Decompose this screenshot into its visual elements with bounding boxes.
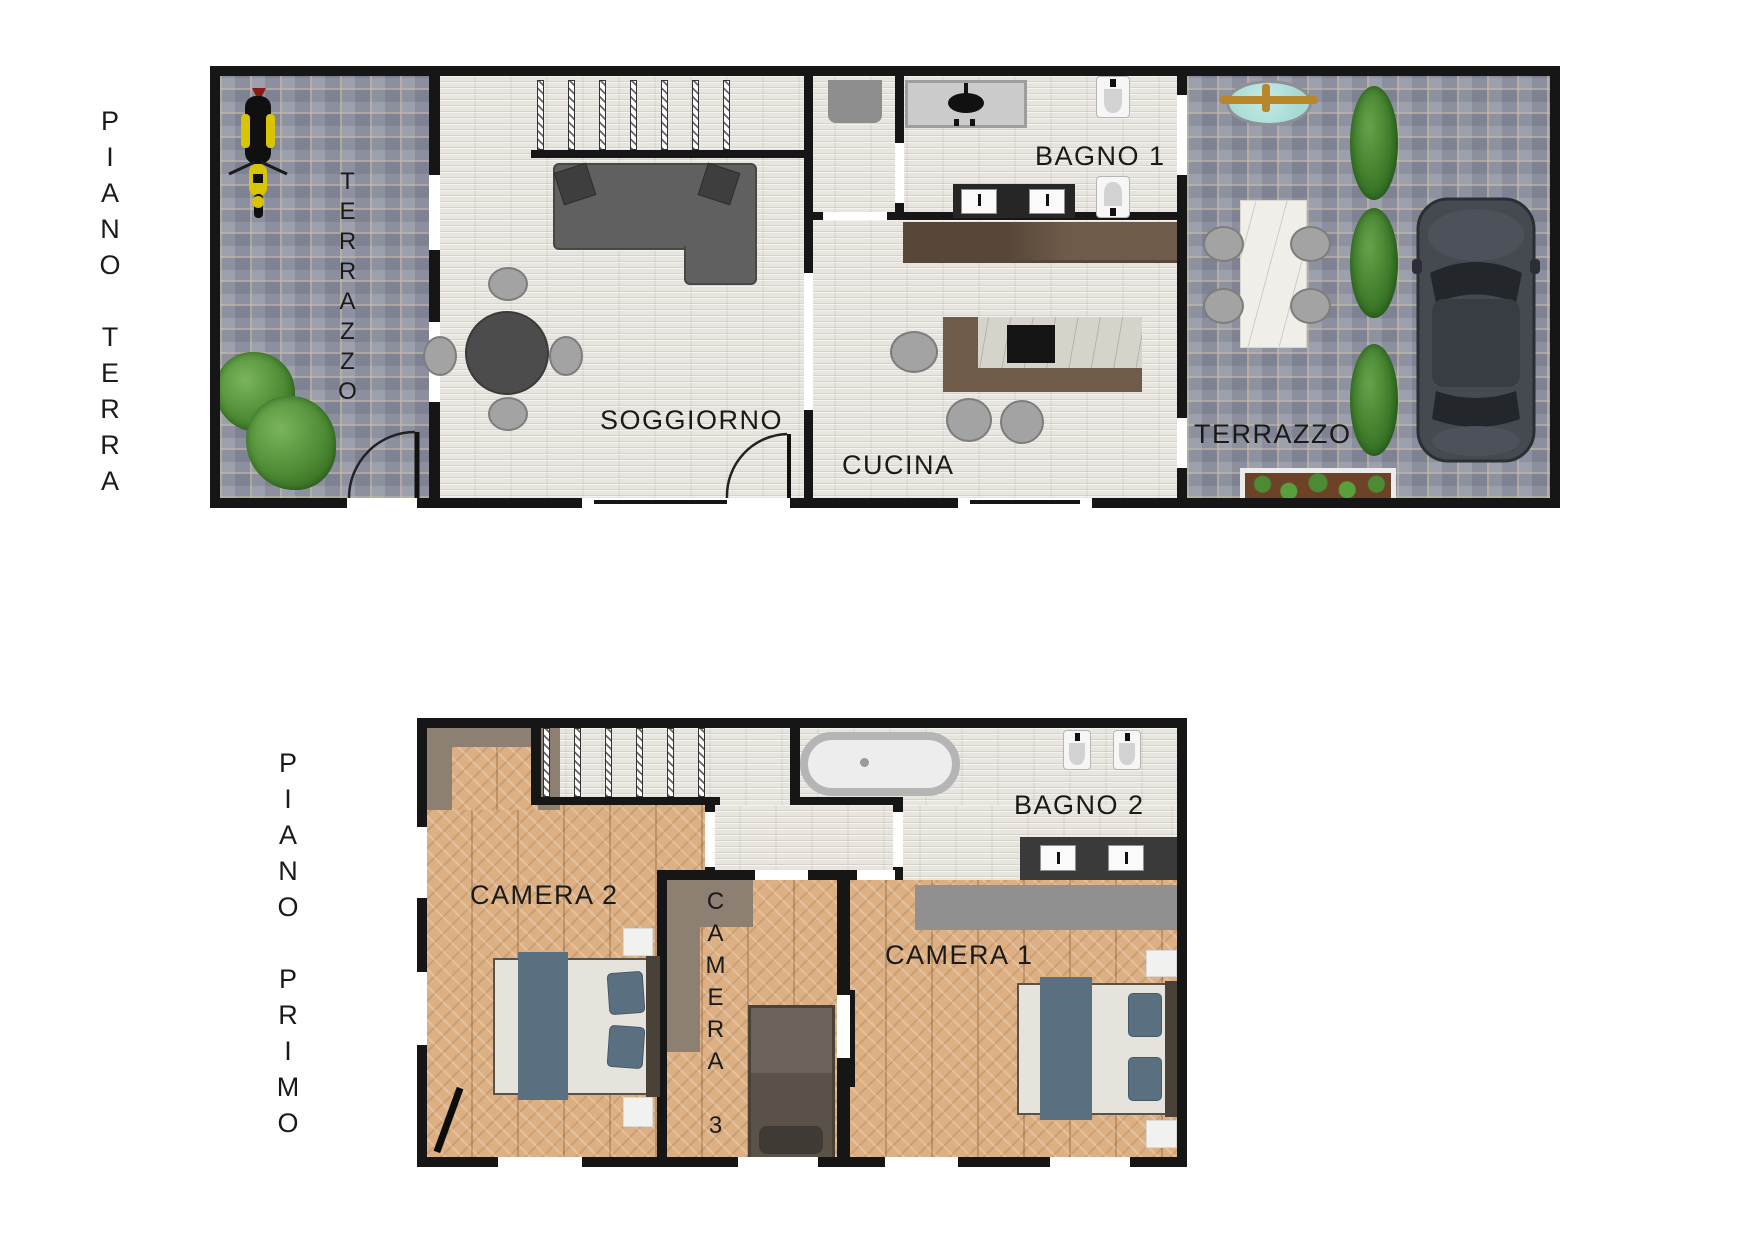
window-opening: [738, 1157, 818, 1167]
window-opening: [417, 827, 427, 898]
outer-wall: [417, 718, 1187, 1167]
door-opening: [347, 498, 417, 508]
room-label-bagno2: BAGNO 2: [1014, 790, 1145, 821]
floor-label-piano-terra: PIANO TERRA: [94, 106, 125, 502]
window-opening: [885, 1157, 958, 1167]
room-label-camera3: CAMERA 3: [701, 888, 729, 1144]
window-opening: [417, 972, 427, 1045]
room-label-cucina: CUCINA: [842, 450, 955, 481]
sliding-door: [970, 500, 1080, 504]
door-opening: [727, 498, 790, 508]
window-opening: [498, 1157, 582, 1167]
room-label-camera1: CAMERA 1: [885, 940, 1034, 971]
window-opening: [1050, 1157, 1130, 1167]
floor-plan-page: PIANO TERRA: [0, 0, 1754, 1241]
room-label-bagno1: BAGNO 1: [1035, 141, 1166, 172]
room-label-terrazzo-left: TERRAZZO: [333, 168, 361, 408]
room-label-terrazzo-right: TERRAZZO: [1194, 419, 1352, 450]
sliding-door: [594, 500, 727, 504]
floor-label-piano-primo: PIANO PRIMO: [272, 748, 303, 1144]
room-label-camera2: CAMERA 2: [470, 880, 619, 911]
room-label-soggiorno: SOGGIORNO: [600, 405, 783, 436]
outer-wall: [210, 66, 1560, 508]
